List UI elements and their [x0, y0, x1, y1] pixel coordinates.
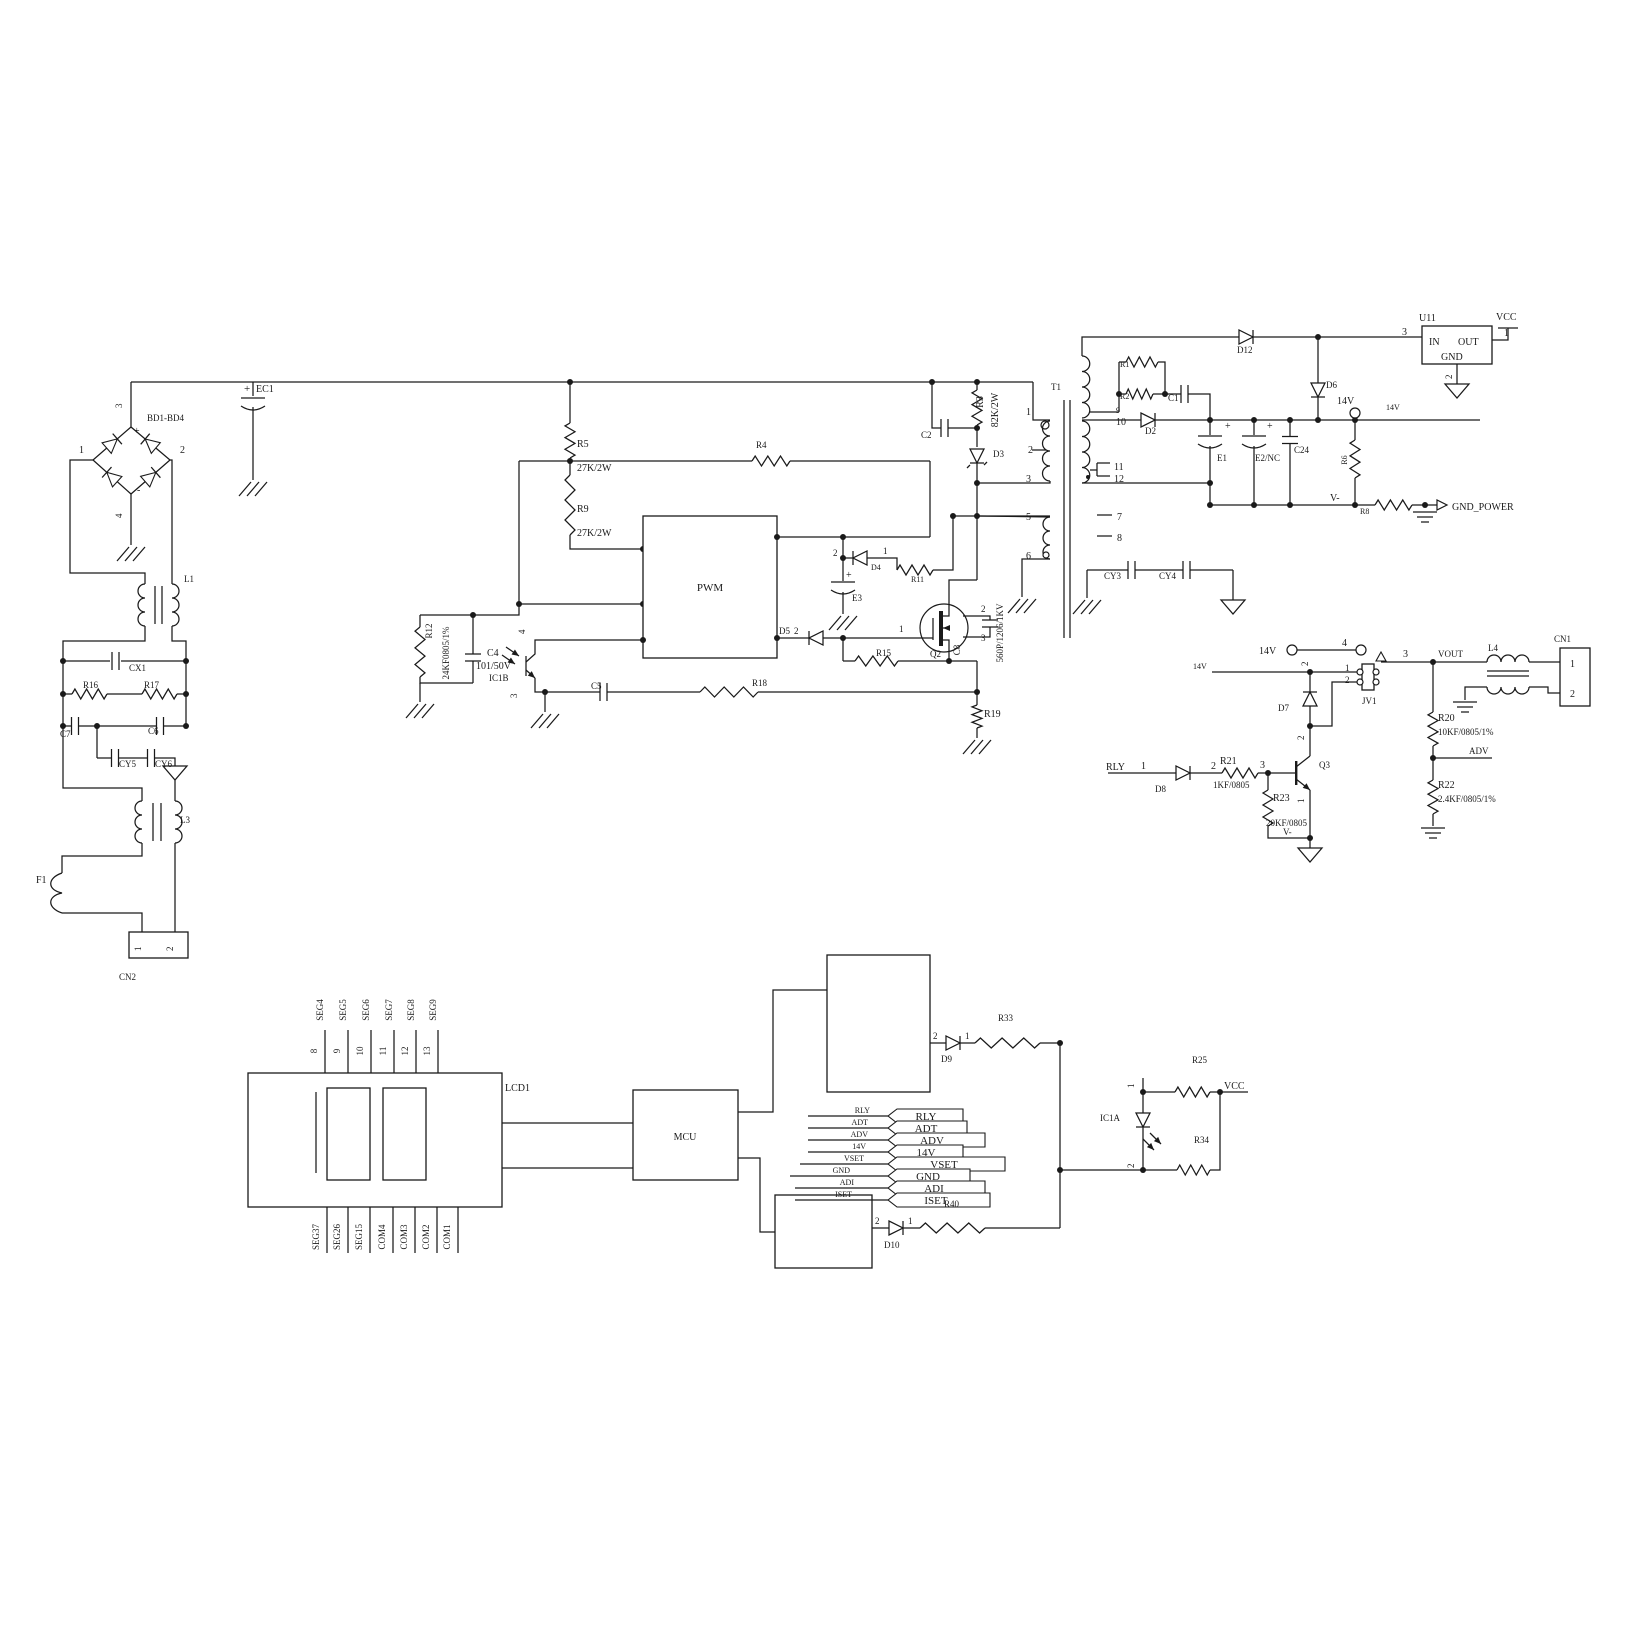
cn1-connector: [1560, 648, 1590, 706]
arrowhead: [512, 650, 519, 656]
label-ic1b: IC1B: [489, 673, 509, 683]
label-d7: D7: [1278, 703, 1289, 713]
t1-primary-1: [1043, 421, 1051, 481]
label-q2: Q2: [930, 649, 941, 659]
label-d9: D9: [941, 1054, 952, 1064]
wire: [172, 626, 186, 726]
gnd-power-arrow: [1437, 500, 1447, 510]
label-r12: R12: [424, 623, 434, 638]
label-q2-pin-2: 2: [981, 604, 986, 614]
label-pwm: PWM: [697, 582, 724, 594]
label-t1-pin-11: 11: [1114, 462, 1124, 473]
driver-box-top: [827, 955, 930, 1092]
label-e1-plus: +: [1225, 421, 1231, 432]
label-rly-wire: RLY: [855, 1106, 870, 1115]
label-t1-pin-10: 10: [1116, 417, 1126, 428]
driver-box-bottom: [775, 1195, 872, 1268]
label-cn1-pin-2: 2: [1570, 689, 1575, 700]
junction-dot: [1057, 1040, 1063, 1046]
label-q2-pin-3: 3: [981, 633, 986, 643]
d6-zener: [1311, 383, 1325, 397]
label-c5: C5: [591, 681, 602, 691]
label-vset-wire: VSET: [844, 1154, 864, 1163]
label-seg5: SEG5: [338, 999, 348, 1021]
label-cn2: CN2: [119, 972, 136, 982]
junction-dot: [1251, 502, 1257, 508]
bridge-diode: [107, 472, 122, 487]
label-sw-pin-3: 3: [1403, 649, 1408, 660]
label-seg26: SEG26: [332, 1224, 342, 1251]
wire: [977, 481, 1050, 483]
junction-dot: [567, 379, 573, 385]
label-vcc-led: VCC: [1224, 1081, 1245, 1092]
label-r18: R18: [752, 678, 768, 688]
label-t1-pin-3: 3: [1026, 474, 1031, 485]
jv1-pin: [1357, 669, 1363, 675]
label-c4: C4: [487, 648, 499, 659]
r8-resistor: [1375, 500, 1412, 510]
label-seg4: SEG4: [315, 999, 325, 1021]
jv1-pin: [1373, 669, 1379, 675]
l3-choke: [135, 801, 142, 843]
label-q2-pin-1: 1: [899, 624, 904, 634]
label-iset-wire: ISET: [835, 1190, 852, 1199]
label-d8-pin-2: 2: [1211, 761, 1216, 772]
label-mcu: MCU: [674, 1132, 698, 1143]
bridge-diode: [102, 439, 117, 454]
label-r8: R8: [1360, 507, 1369, 516]
wire: [70, 460, 145, 584]
label-t1: T1: [1051, 382, 1061, 392]
label-d12: D12: [1237, 345, 1253, 355]
label-flag-rly: RLY: [916, 1111, 937, 1123]
label-l3: L3: [180, 815, 190, 825]
label-ic1b-pin-4: 4: [517, 629, 527, 634]
label-ic1a-pin-2: 2: [1126, 1164, 1136, 1169]
label-jv1: JV1: [1362, 696, 1377, 706]
label-jv1-pin-2: 2: [1345, 675, 1350, 685]
label-com3: COM3: [399, 1224, 409, 1250]
ground-triangle-icon: [1445, 384, 1469, 398]
junction-dot: [60, 658, 66, 664]
label-r5-value: 27K/2W: [577, 463, 612, 474]
wire: [1465, 687, 1487, 700]
d5-diode: [809, 631, 823, 645]
label-lcd-pin-10: 10: [355, 1046, 365, 1056]
r22-resistor: [1428, 780, 1438, 814]
wire: [1040, 1043, 1060, 1228]
q3-transistor: [1296, 756, 1310, 767]
label-14v-sw: 14V: [1259, 646, 1277, 657]
junction-dot: [60, 691, 66, 697]
label-flag-vset: VSET: [930, 1159, 958, 1171]
label-ec1-plus: +: [244, 383, 250, 395]
label-c8: C8: [952, 644, 962, 655]
r9-resistor: [565, 475, 575, 535]
d2-diode: [1141, 413, 1155, 427]
lcd1-display: [248, 1073, 502, 1207]
label-rly: RLY: [1106, 762, 1125, 773]
label-t1-pin-1: 1: [1026, 407, 1031, 418]
junction-dot: [183, 658, 189, 664]
lcd-digit-cell: [383, 1088, 426, 1180]
label-c7: C7: [60, 729, 71, 739]
label-com2: COM2: [421, 1224, 431, 1249]
jv1-pin: [1357, 679, 1363, 685]
label-lcd-pin-12: 12: [400, 1047, 410, 1056]
label-c2: C2: [921, 430, 932, 440]
label-14v-wire-2: 14V: [1193, 662, 1207, 671]
bridge-diode: [141, 472, 156, 487]
wire: [62, 843, 142, 873]
r4-resistor: [752, 456, 790, 466]
label-adi-wire: ADI: [840, 1178, 855, 1187]
d8-diode: [1176, 766, 1190, 780]
wire: [170, 460, 172, 584]
r21-resistor: [1222, 768, 1258, 778]
l4-choke: [1487, 655, 1529, 662]
r16-resistor: [72, 689, 107, 699]
label-t1-pin-8: 8: [1117, 533, 1122, 544]
label-q3-pin-1: 1: [1296, 799, 1306, 804]
label-r2: R2: [1120, 392, 1129, 401]
label-u11-gnd: GND: [1441, 352, 1463, 363]
wire: [1188, 394, 1210, 420]
label-d6: D6: [1326, 380, 1337, 390]
label-flag-adi: ADI: [924, 1183, 944, 1195]
schematic-page: 3BD1-BD4124+-+EC1L1CX1R16R17C7C6CY5CY6L3…: [0, 0, 1639, 1640]
phase-dot: [1086, 475, 1090, 479]
label-r9-value: 27K/2W: [577, 528, 612, 539]
label-e1: E1: [1217, 453, 1227, 463]
label-cn2-pin-2: 2: [165, 947, 175, 952]
label-t1-pin-5: 5: [1026, 512, 1031, 523]
d12-diode: [1239, 330, 1253, 344]
label-u11-pin-2: 2: [1444, 375, 1454, 380]
label-flag-14v: 14V: [917, 1147, 936, 1159]
label-com1: COM1: [442, 1224, 452, 1249]
label-u11-pin-1: 1: [1504, 328, 1509, 339]
d3-zener: [984, 462, 987, 465]
label-bd-pin-3: 3: [114, 403, 124, 408]
label-e3-plus: +: [846, 570, 852, 581]
label-d2: D2: [1145, 426, 1156, 436]
label-c4-value: 101/50V: [476, 661, 512, 672]
ground-triangle-icon: [1298, 848, 1322, 862]
label-r15: R15: [876, 648, 892, 658]
d4-diode: [853, 551, 867, 565]
label-cn1: CN1: [1554, 634, 1571, 644]
label-e2: E2/NC: [1255, 453, 1280, 463]
label-d9-pin-2: 2: [933, 1031, 938, 1041]
schematic-canvas: 3BD1-BD4124+-+EC1L1CX1R16R17C7C6CY5CY6L3…: [0, 0, 1639, 1640]
label-r20: R20: [1438, 713, 1455, 724]
label-bd-pin-4: 4: [114, 513, 124, 518]
d3-zener: [967, 465, 970, 468]
label-bd-pin-2: 2: [180, 445, 185, 456]
label-cy6: CY6: [155, 759, 173, 769]
l4-choke: [1487, 687, 1529, 694]
label-d10: D10: [884, 1240, 900, 1250]
label-vout: VOUT: [1438, 649, 1463, 659]
bridge-rectifier: [93, 427, 170, 494]
label-r23: R23: [1273, 793, 1290, 804]
lcd-digit-cell: [327, 1088, 370, 1180]
label-r21-value: 1KF/0805: [1213, 780, 1250, 790]
label-r4: R4: [756, 440, 767, 450]
label-14v-flag-wire: 14V: [852, 1142, 866, 1151]
label-cn1-pin-1: 1: [1570, 659, 1575, 670]
label-cy5: CY5: [119, 759, 137, 769]
label-r34: R34: [1194, 1135, 1210, 1145]
label-bd1-bd4: BD1-BD4: [147, 413, 185, 423]
label-seg9: SEG9: [428, 999, 438, 1021]
wire: [526, 640, 643, 662]
label-gnd-wire: GND: [833, 1166, 851, 1175]
label-bd-plus: +: [134, 426, 140, 437]
r11-resistor: [897, 565, 933, 575]
label-d10-pin-2: 2: [875, 1216, 880, 1226]
wire: [1082, 337, 1239, 356]
label-r21: R21: [1220, 756, 1237, 767]
label-c6: C6: [148, 726, 159, 736]
wire: [1310, 682, 1362, 726]
r1-resistor: [1126, 357, 1158, 367]
label-adv: ADV: [1469, 746, 1489, 756]
label-d3: D3: [993, 449, 1004, 459]
phase-dot: [1043, 552, 1049, 558]
label-lcd-pin-13: 13: [422, 1046, 432, 1056]
label-vcc-u11: VCC: [1496, 312, 1517, 323]
label-ec1: EC1: [256, 384, 274, 395]
label-u11-pin-3: 3: [1402, 327, 1407, 338]
label-lcd1: LCD1: [505, 1083, 530, 1094]
junction-dot: [640, 637, 646, 643]
r40-resistor: [920, 1223, 985, 1233]
switch-node: [1356, 645, 1366, 655]
wire: [1529, 687, 1560, 693]
f1-fuse: [51, 873, 62, 913]
label-u11-out: OUT: [1458, 337, 1479, 348]
l1-choke: [138, 584, 145, 626]
label-com4: COM4: [377, 1224, 387, 1250]
wire: [63, 780, 142, 801]
label-r17: R17: [144, 680, 160, 690]
junction-dot: [1287, 502, 1293, 508]
jv1-pin: [1373, 679, 1379, 685]
label-t1-pin-12: 12: [1114, 474, 1124, 485]
wire: [62, 913, 142, 932]
label-l4: L4: [1488, 643, 1498, 653]
junction-dot: [1352, 502, 1358, 508]
jv1-jumper: [1362, 664, 1374, 690]
label-lcd-pin-8: 8: [309, 1048, 319, 1053]
label-q3: Q3: [1319, 760, 1330, 770]
label-ic1b-pin-3: 3: [509, 693, 519, 698]
label-14v-wire: 14V: [1386, 403, 1400, 412]
d7-zener: [1303, 692, 1317, 706]
wire: [932, 382, 941, 428]
label-flag-gnd: GND: [916, 1171, 940, 1183]
label-cy3: CY3: [1104, 571, 1122, 581]
label-l1: L1: [184, 574, 194, 584]
label-r16: R16: [83, 680, 99, 690]
ic1a-led: [1136, 1113, 1150, 1127]
r18-resistor: [700, 687, 758, 697]
label-flag-adt: ADT: [915, 1123, 938, 1135]
label-adt-wire: ADT: [852, 1118, 869, 1127]
label-lcd-pin-11: 11: [378, 1047, 388, 1056]
junction-dot: [1207, 502, 1213, 508]
wire: [1022, 559, 1050, 597]
label-r19: R19: [984, 709, 1001, 720]
label-v-minus-1: V-: [1330, 493, 1340, 504]
r17-resistor: [142, 689, 177, 699]
label-t1-pin-6: 6: [1026, 551, 1031, 562]
label-cn2-pin-1: 1: [133, 947, 143, 952]
label-r11: R11: [911, 575, 924, 584]
label-seg37: SEG37: [311, 1224, 321, 1251]
label-u11-in: IN: [1429, 337, 1440, 348]
label-r22: R22: [1438, 780, 1455, 791]
r20-resistor: [1428, 712, 1438, 746]
label-v-minus-2: V-: [1283, 827, 1292, 837]
d3-zener: [970, 449, 984, 463]
label-u11: U11: [1419, 313, 1436, 324]
r33-resistor: [975, 1038, 1040, 1048]
label-r40: R40: [944, 1199, 960, 1209]
label-lcd-pin-9: 9: [332, 1048, 342, 1053]
label-flag-adv: ADV: [920, 1135, 944, 1147]
label-t1-pin-7: 7: [1117, 512, 1122, 523]
label-bd-pin-1: 1: [79, 445, 84, 456]
label-cy4: CY4: [1159, 571, 1177, 581]
label-r3-value: 82K/2W: [990, 392, 1001, 427]
label-r21-pin-3: 3: [1260, 760, 1265, 771]
junction-dot: [183, 723, 189, 729]
wire: [1033, 382, 1050, 420]
label-r3: R3: [975, 396, 986, 408]
label-d10-pin-1: 1: [908, 1216, 913, 1226]
r2-resistor: [1126, 389, 1153, 399]
label-ic1a-pin-1: 1: [1126, 1084, 1136, 1089]
label-d9-pin-1: 1: [965, 1031, 970, 1041]
label-d4-pin-2: 2: [833, 548, 838, 558]
label-e2-plus: +: [1267, 421, 1273, 432]
label-r5: R5: [577, 439, 589, 450]
l1-choke: [172, 584, 179, 626]
label-r22-value: 2.4KF/0805/1%: [1438, 794, 1496, 804]
schematic-geometry: [51, 326, 1590, 1268]
label-e3: E3: [852, 593, 862, 603]
r6-resistor: [1350, 440, 1360, 478]
label-r1: R1: [1120, 360, 1129, 369]
label-t1-pin-2: 2: [1028, 445, 1033, 456]
junction-dot: [1307, 723, 1313, 729]
arrowhead: [1303, 783, 1310, 790]
t1-secondary-2: [1082, 421, 1090, 483]
switch-arrow: [1376, 652, 1386, 661]
d10-diode: [889, 1221, 903, 1235]
label-c8-value: 560P/1206/1KV: [995, 603, 1005, 663]
t1-secondary-1: [1082, 356, 1090, 418]
wire: [949, 580, 977, 604]
bridge-diode: [145, 439, 160, 453]
label-f1: F1: [36, 875, 47, 886]
label-d4: D4: [871, 563, 881, 572]
r34-resistor: [1177, 1165, 1210, 1175]
label-d8: D8: [1155, 784, 1166, 794]
wire: [738, 990, 827, 1112]
junction-dot: [183, 691, 189, 697]
label-d5: D5: [779, 626, 790, 636]
label-adv-wire: ADV: [851, 1130, 869, 1139]
label-r6: R6: [1340, 455, 1349, 464]
label-jv1-coil-pin-2: 2: [1300, 662, 1310, 667]
r25-resistor: [1175, 1087, 1210, 1097]
label-seg8: SEG8: [406, 999, 416, 1021]
label-r33: R33: [998, 1013, 1014, 1023]
ground-triangle-icon: [1221, 600, 1245, 614]
d9-diode: [946, 1036, 960, 1050]
r5-resistor: [565, 423, 575, 458]
label-seg15: SEG15: [354, 1224, 364, 1251]
label-14v-node: 14V: [1337, 396, 1355, 407]
label-d8-pin-1: 1: [1141, 761, 1146, 772]
wire: [420, 604, 519, 615]
wire: [738, 1158, 775, 1232]
q2-channel: [939, 611, 943, 646]
label-r9: R9: [577, 504, 589, 515]
wire: [933, 516, 953, 570]
label-gnd-power: GND_POWER: [1452, 502, 1514, 513]
label-bd-minus: -: [137, 485, 140, 496]
label-r12-value: 24KF0805/1%: [441, 626, 451, 680]
label-jv1-pin-1: 1: [1345, 663, 1350, 673]
junction-dot: [1315, 417, 1321, 423]
switch-node: [1287, 645, 1297, 655]
label-c24: C24: [1294, 445, 1310, 455]
junction-dot: [1422, 502, 1428, 508]
label-d5-pin-2: 2: [794, 626, 799, 636]
label-seg7: SEG7: [384, 999, 394, 1021]
cn2-connector: [129, 932, 188, 958]
wire: [1210, 1092, 1220, 1170]
label-ic1a: IC1A: [1100, 1113, 1121, 1123]
label-r25: R25: [1192, 1055, 1208, 1065]
wire: [63, 626, 145, 780]
wire: [1158, 362, 1165, 394]
label-c1: C1: [1168, 393, 1179, 403]
r19-resistor: [972, 705, 982, 728]
label-d4-pin-1: 1: [883, 546, 888, 556]
label-sw-pin-4: 4: [1342, 638, 1347, 649]
label-r20-value: 10KF/0805/1%: [1438, 727, 1494, 737]
14v-node-circle: [1350, 408, 1360, 418]
label-q3-pin-2: 2: [1296, 736, 1306, 741]
label-t1-pin-9: 9: [1116, 406, 1120, 415]
label-cx1: CX1: [129, 663, 146, 673]
label-seg6: SEG6: [361, 999, 371, 1021]
